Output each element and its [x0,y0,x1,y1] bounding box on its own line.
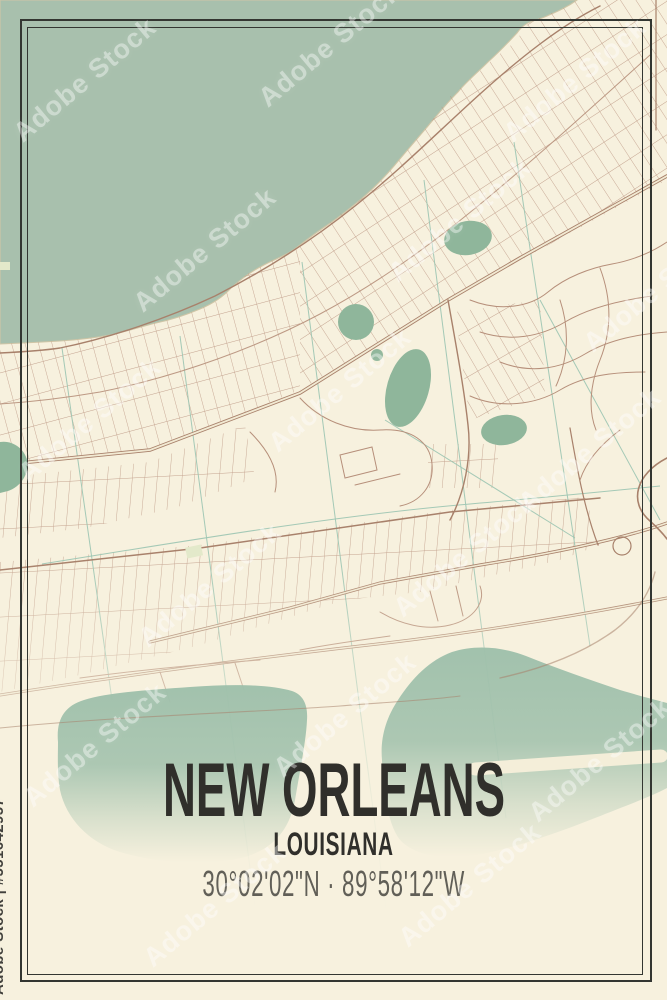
map-canvas [0,0,667,1000]
stock-id-watermark: Adobe Stock | #551642957 [0,798,7,995]
map-poster: NEW ORLEANS LOUISIANA 30°02'02"N · 89°58… [0,0,667,1000]
